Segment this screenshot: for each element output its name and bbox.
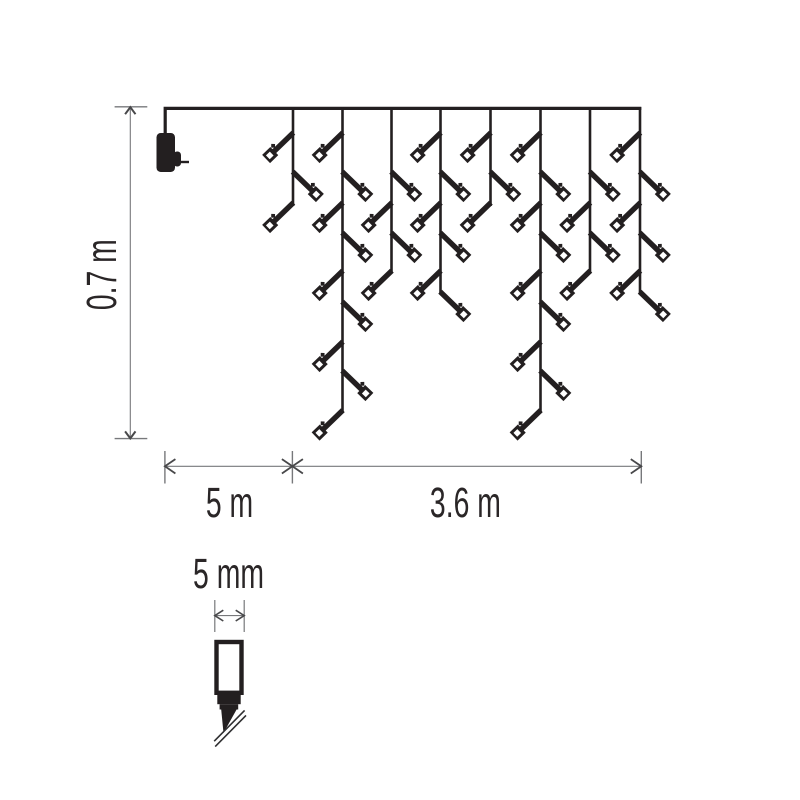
svg-text:3.6 m: 3.6 m	[430, 478, 501, 526]
svg-text:0.7 m: 0.7 m	[77, 239, 125, 310]
svg-text:5 m: 5 m	[206, 478, 253, 526]
svg-text:5 mm: 5 mm	[193, 549, 264, 597]
